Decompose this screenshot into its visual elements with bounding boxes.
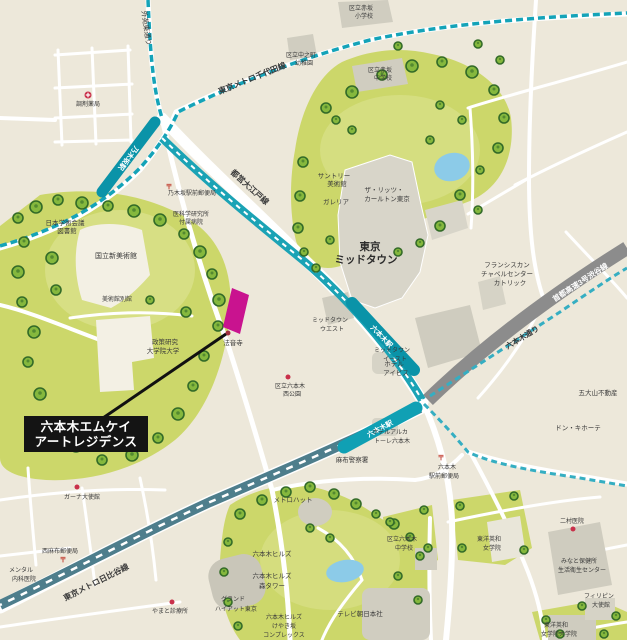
tree-icon-center [329,536,331,538]
keyaki-label-3: コンプレックス [263,632,305,639]
tree-icon-center [417,598,419,600]
mental-clinic-label-1: メンタル [9,566,33,574]
tree-icon-center [285,490,288,493]
tree-icon-center [158,217,162,221]
nakanocho-label-1: 区立中之町 [286,51,316,59]
roppongi-jhs-label-2: 中学校 [395,544,413,552]
art-center-annex-label: 美術館別館 [102,295,132,303]
research-hospital-label-2: 付属病院 [179,218,203,226]
tree-icon-center [439,224,442,227]
tree-icon-center [499,58,501,60]
ghana-embassy-dot [75,485,80,490]
grips-label-2: 大学院大学 [147,346,180,355]
ghana-label: ガーナ大使館 [64,493,100,501]
tree-icon-center [335,118,337,120]
art-center-label: 国立新美術館 [95,251,137,260]
tree-icon-center [32,329,36,333]
franciscan-label-1: フランシスカン [484,261,530,269]
roppongi-post-mark: 〒 [438,454,445,462]
nogizaka-post-mark: 〒 [166,183,173,191]
tv-asahi-label: テレビ朝日本社 [337,609,383,618]
tree-icon-center [410,63,414,67]
tree-icon-center [493,88,496,91]
godaisan-label: 五大山不動産 [579,388,619,397]
ritz-label-2: カールトン東京 [364,194,410,203]
tree-icon-center [55,288,58,291]
tree-icon-center [309,526,311,528]
tree-icon-center [397,44,399,46]
mori-tower-label-2: 森タワー [259,581,285,590]
nimura-label: 二村医院 [560,517,584,525]
tree-icon-center [439,103,441,105]
philippines-label-2: 大使館 [592,601,610,609]
grips-label-1: 政策研究 [152,337,179,346]
tree-icon-center [325,106,328,109]
tree-icon-center [176,411,180,415]
toyo-eiwa-label-2: 女学院 [483,544,501,552]
tree-icon-center [27,360,30,363]
hyatt-label-1: グランド [221,595,245,603]
tree-icon-center [477,208,479,210]
tree-icon-center [419,554,421,556]
donki-label: ドン・キホーテ [555,424,601,432]
tree-icon-center [479,168,481,170]
ritz-label-1: ザ・リッツ・ [365,186,404,194]
tree-icon-center [57,198,60,201]
tree-icon-center [302,160,305,163]
nakanocho-label-2: 幼稚園 [295,59,313,67]
tree-icon-center [38,391,42,395]
suntory-label-1: サントリー [318,172,351,180]
nishi-park-label-1: 区立六本木 [275,382,305,390]
keyaki-label-2: けやき坂 [272,622,296,630]
tree-icon-center [470,69,474,73]
tree-icon-center [459,504,461,506]
akasaka-jhs-label-2: 中学校 [374,74,392,82]
philippines-embassy-building [585,598,615,620]
toyo-eiwa-label-1: 東洋英和 [477,535,501,543]
nishiazabu-post-label: 西麻布郵便局 [42,547,78,555]
hotel-arca-label-2: トーレ六本木 [374,437,410,445]
tree-icon-center [513,494,515,496]
tree-icon-center [239,512,242,515]
roppongi-post-label-2: 駅前郵便局 [429,472,459,480]
midtown-west-label-2: ウエスト [320,325,344,333]
nishi-park-dot [286,375,291,380]
tree-icon-center [130,452,134,456]
franciscan-label-3: カトリック [494,279,527,287]
property-name-line1: 六本木エムケイ [41,419,132,434]
honoji-label: 法音寺 [223,338,243,347]
tree-icon-center [351,128,353,130]
midtown-east-label-1: ミッドタウン [374,346,410,354]
minato-hoken-label-2: 生活衛生センター [558,566,606,574]
tree-icon-center [329,238,331,240]
tree-icon-center [34,204,38,208]
akasaka-es-label-1: 区立赤坂 [349,4,373,12]
metro-hat-label: メトロハット [274,497,313,504]
tree-icon-center [477,42,479,44]
mori-tower-label-1: 六本木ヒルズ [253,571,293,580]
tree-icon-center [261,498,264,501]
tree-icon-center [157,436,160,439]
tree-icon-center [419,241,421,243]
keyaki-label-1: 六本木ヒルズ [266,613,302,621]
tree-icon-center [211,272,214,275]
tree-icon-center [237,624,239,626]
tree-icon-center [297,226,300,229]
roppongi-jhs-label-1: 区立六本木 [387,535,417,543]
tree-icon-center [23,240,26,243]
tree-icon-center [132,208,136,212]
tree-icon-center [217,297,221,301]
tree-icon-center [523,548,525,550]
tree-icon-center [185,310,188,313]
tree-icon-center [350,89,354,93]
science-council-label-1: 日本学術会議 [46,218,86,227]
tree-icon-center [107,204,110,207]
tree-icon-center [497,146,500,149]
eiwa-grad-label-2: 女学院大学院 [541,630,577,638]
tree-icon-center [389,520,391,522]
tree-icon-center [50,255,54,259]
tree-icon-center [183,232,186,235]
tree-icon-center [441,60,444,63]
hyatt-label-2: ハイアット東京 [215,605,257,613]
franciscan-label-2: チャペルセンター [481,269,533,278]
tree-icon-center [299,194,302,197]
tree-icon-center [192,384,195,387]
nogizaka-post-label: 乃木坂駅前郵便局 [168,189,216,197]
tree-icon-center [461,546,463,548]
tree-icon-center [198,249,202,253]
tree-icon-center [101,458,104,461]
minato-hoken-label-1: みなと保健所 [561,557,597,565]
nishiazabu-post-mark: 〒 [60,556,67,564]
tree-icon-center [309,485,312,488]
yamato-clinic-dot [170,600,175,605]
property-name-line2: アートレジデンス [34,434,137,449]
tree-icon-center [461,118,463,120]
tree-icon-center [427,546,429,548]
tree-icon-center [223,570,225,572]
research-hospital-label-1: 医科学研究所 [173,210,209,218]
hotel-ibis-label-1: ホテル [384,360,404,368]
tree-icon-center [429,138,431,140]
tree-icon-center [603,632,605,634]
midtown-west-label-1: ミッドタウン [312,316,348,324]
tree-icon-center [355,502,358,505]
tree-icon-center [217,324,220,327]
tree-icon-center [80,200,84,204]
philippines-label-1: フィリピン [584,593,614,600]
tree-icon-center [333,492,336,495]
midtown-label-2: ミッドタウン [335,254,398,266]
tree-icon-center [397,574,399,576]
tree-icon-center [149,298,151,300]
galleria-label: ガレリア [323,197,350,206]
nishi-park-label-2: 西公園 [283,391,301,398]
tree-icon-center [375,512,377,514]
akasaka-jhs-label-1: 区立赤坂 [368,66,392,74]
eiwa-grad-label-1: 東洋英和 [544,621,568,629]
tree-icon-center [315,266,317,268]
mental-clinic-label-2: 内科医院 [12,575,36,583]
tree-icon-center [17,216,20,219]
tree-icon-center [303,250,305,252]
yamato-clinic-label: やまと診療所 [152,607,188,615]
map-canvas: 乃木坂駅 六本木駅 六本木駅 外苑東通り 東京メトロ千代田線 都営大江戸線 東京… [0,0,627,640]
suntory-label-2: 美術館 [327,179,347,188]
akasaka-es-label-2: 小学校 [355,12,373,20]
tree-icon-center [581,604,583,606]
tree-icon-center [21,300,24,303]
midtown-label-1: 東京 [360,240,381,253]
roppongi-post-label-1: 六本木 [438,463,456,471]
nimura-clinic-dot [571,527,576,532]
science-council-label-2: 図書館 [57,226,77,235]
hills-label: 六本木ヒルズ [253,549,293,558]
tree-icon-center [545,618,547,620]
tree-icon-center [397,250,399,252]
hotel-ibis-label-2: アイビス [383,368,409,377]
hotel-arca-label-1: ホテルアルカ [372,429,408,436]
tree-icon-center [423,508,425,510]
tree-icon-center [615,614,617,616]
tree-icon-center [227,540,229,542]
tree-icon-center [459,193,462,196]
tree-icon-center [503,116,506,119]
azabu-police-label: 麻布警察署 [336,455,369,464]
tree-icon-center [16,269,20,273]
tree-icon-center [203,354,206,357]
area-map: 乃木坂駅 六本木駅 六本木駅 外苑東通り 東京メトロ千代田線 都営大江戸線 東京… [0,0,627,640]
pharmacy-label: 調剤薬局 [76,100,100,108]
